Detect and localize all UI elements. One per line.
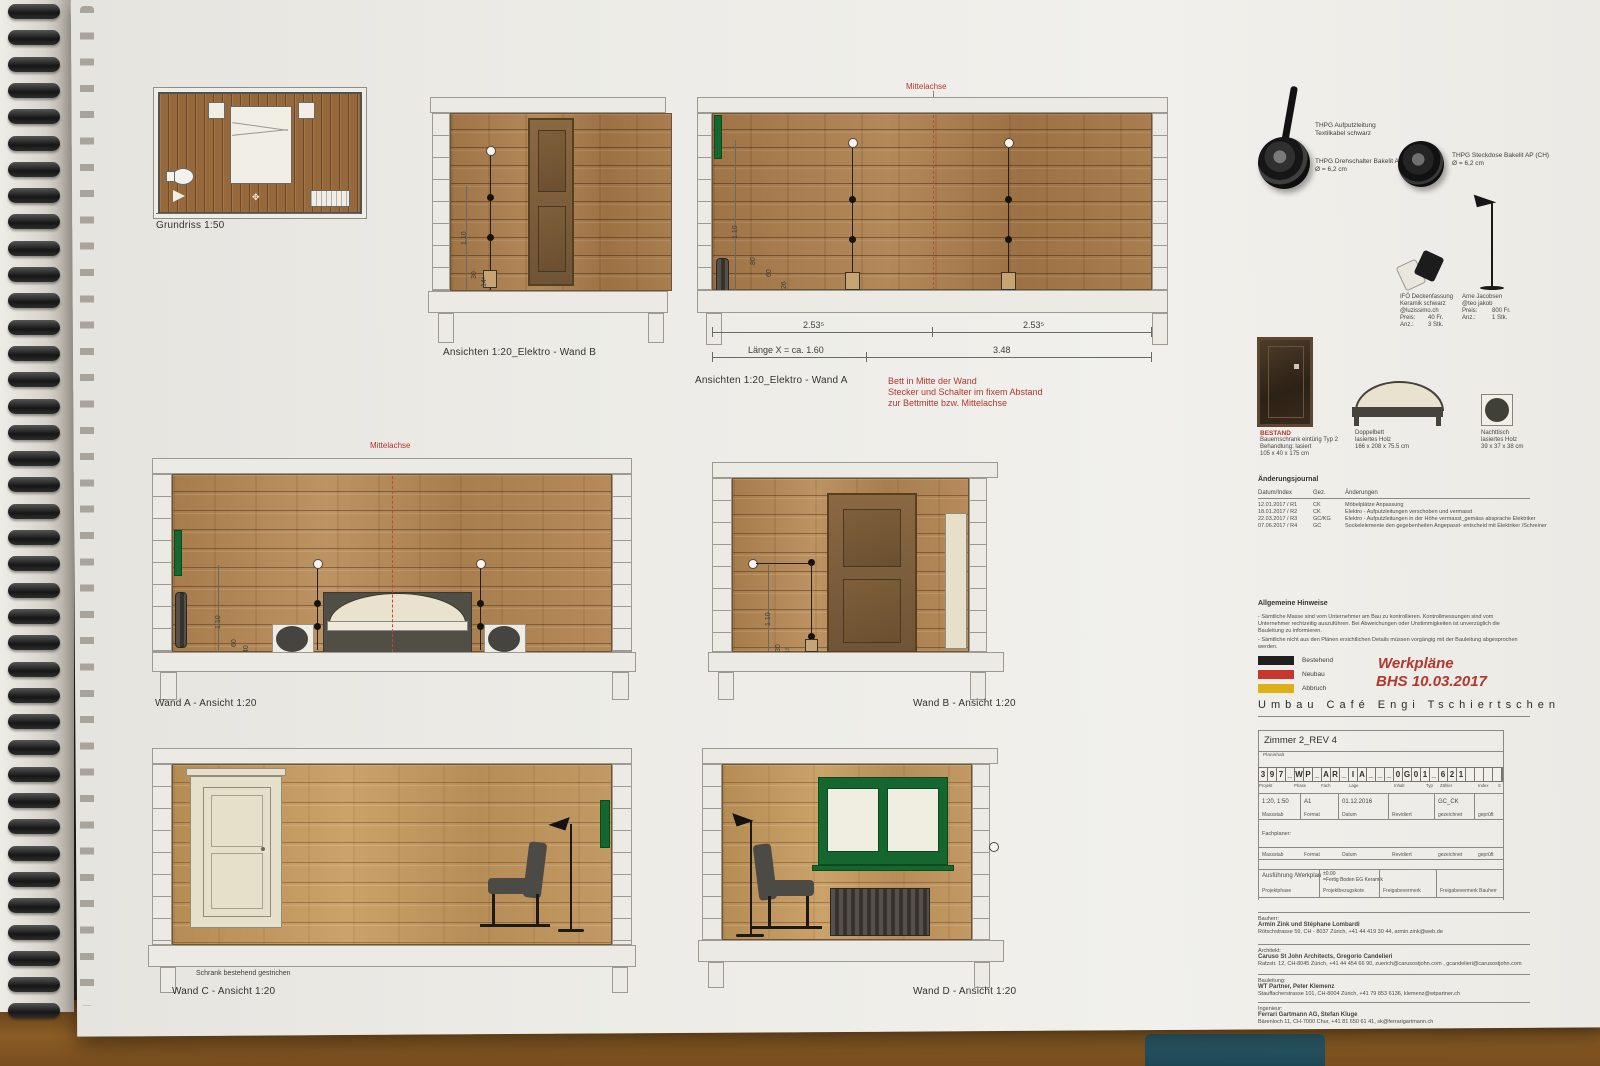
- switch-dot: [314, 600, 321, 607]
- binding-ring: [8, 57, 60, 72]
- chair-leg: [806, 896, 809, 926]
- post-stub: [438, 313, 454, 343]
- dim-110: 1.10: [461, 231, 468, 245]
- label2-massstab: Massstab: [1262, 852, 1283, 858]
- plan-number-label-fach: Fach: [1321, 783, 1331, 788]
- sill-beam: [697, 290, 1168, 313]
- center-axis-dashed: [392, 476, 393, 652]
- steckdose-label-2: Ø = 6,2 cm: [1452, 160, 1484, 167]
- rotary-switch-photo: [1258, 137, 1310, 189]
- legend-swatch-neubau: [1258, 670, 1294, 679]
- log-column: [702, 764, 722, 940]
- stehleuchte-preis-label: Preis:: [1462, 308, 1477, 314]
- elevation-label: Wand B - Ansicht 1:20: [913, 698, 1016, 709]
- journal-row-date: 12.01.2017 / R1: [1258, 502, 1297, 508]
- legend-swatch-bestehend: [1258, 656, 1294, 665]
- contact-rule: [1258, 912, 1530, 913]
- doppelbett-label-2: lasiertes Holz: [1355, 437, 1391, 443]
- log-column: [612, 474, 632, 652]
- binding-ring: [8, 846, 60, 861]
- electrical-drop-line: [1008, 144, 1009, 290]
- binding-ring: [8, 214, 60, 229]
- contact-rule: [1258, 974, 1530, 975]
- log-column: [712, 478, 732, 652]
- project-title-rule: [1258, 716, 1530, 717]
- dim-line: [218, 565, 219, 652]
- value-projektphase: Ausführung /Werkplan: [1262, 873, 1321, 879]
- binding-ring: [8, 399, 60, 414]
- lamp-outlet-dot: [486, 146, 496, 156]
- label2-datum: Datum: [1342, 852, 1357, 858]
- elevation-wand-c: Schrank bestehend gestrichen Wand C - An…: [148, 730, 640, 1000]
- bestand-label-3: 105 x 40 x 175 cm: [1260, 451, 1309, 457]
- titleblock-rightline: [1503, 730, 1504, 900]
- value-datum: 01.12.2016: [1342, 799, 1372, 805]
- elevation-elektro-wand-b: 1.10 30 14⁵ Ansichten 1:20_Elektro - Wan…: [428, 90, 673, 358]
- door-jamb-green: [600, 800, 610, 848]
- value-gezeichnet: GC_CK: [1438, 799, 1459, 805]
- binding-ring: [8, 136, 60, 151]
- fachplaner-label: Fachplaner:: [1262, 831, 1291, 837]
- log-column: [432, 113, 450, 291]
- contact-name: WT Partner, Peter Klemenz: [1258, 984, 1334, 990]
- socket-box: [805, 639, 818, 652]
- sep: [1474, 793, 1475, 819]
- plan-number-label-typ: Typ: [1426, 783, 1433, 788]
- binding-holes: [80, 6, 94, 1006]
- binding-ring: [8, 477, 60, 492]
- log-column: [972, 764, 990, 940]
- toilet-plan: [172, 168, 194, 185]
- dim-60: 60: [766, 269, 773, 277]
- journal-title: Änderungsjournal: [1258, 476, 1318, 483]
- plan-title-sublabel: Planinhalt: [1263, 753, 1284, 758]
- beam: [152, 748, 632, 764]
- stehleuchte-preis: 800 Fr.: [1492, 308, 1511, 314]
- sep: [1300, 793, 1301, 819]
- binding-ring: [8, 109, 60, 124]
- nachttisch-label-1: Nachttisch: [1481, 430, 1509, 436]
- elevation-label: Ansichten 1:20_Elektro - Wand B: [443, 347, 596, 358]
- schalter-label-1: THPG Drehschalter Bakelit AP: [1315, 158, 1403, 165]
- value-kote2: =Fertig Boden EG Keramik: [1323, 877, 1383, 883]
- radiator: [175, 592, 187, 648]
- socket-dot: [487, 234, 494, 241]
- elevation-label: Wand D - Ansicht 1:20: [913, 986, 1016, 997]
- stamp-werkplaene: Werkpläne: [1378, 655, 1454, 672]
- electrical-drop-line: [317, 565, 318, 650]
- lamp-outlet-dot: [748, 559, 758, 569]
- post-stub: [970, 672, 986, 700]
- sill-beam: [708, 652, 1004, 672]
- bed-plan: [230, 106, 292, 184]
- bed-mattress: [327, 621, 468, 631]
- post-stub: [706, 313, 722, 345]
- socket-dot: [314, 623, 321, 630]
- row1-bottomline: [1258, 819, 1503, 820]
- tick: [712, 352, 713, 362]
- socket-dot: [477, 623, 484, 630]
- contact-address: Stauffacherstrasse 101, CH-8004 Zürich, …: [1258, 991, 1460, 997]
- deckenfassung-anz-label: Anz.:: [1400, 322, 1414, 328]
- socket-dot: [1005, 236, 1012, 243]
- electrical-drop-line: [852, 144, 853, 290]
- dim-110: 1.10: [215, 615, 222, 629]
- radiator: [830, 888, 930, 936]
- label-revidiert: Revidiert: [1392, 812, 1412, 818]
- doppelbett-drawing: [1352, 381, 1443, 427]
- chair-runner: [752, 926, 822, 929]
- switch-dot: [477, 600, 484, 607]
- binding-ring: [8, 83, 60, 98]
- row2-bottomline: [1258, 859, 1503, 860]
- beam: [702, 748, 998, 764]
- chair-seat: [762, 880, 814, 896]
- doppelbett-label-1: Doppelbett: [1355, 430, 1384, 436]
- stamp-date: BHS 10.03.2017: [1376, 673, 1487, 690]
- post-stub: [612, 672, 629, 700]
- deckenfassung-anz: 3 Stk.: [1428, 322, 1443, 328]
- switch-dot: [487, 194, 494, 201]
- socket-box: [1001, 272, 1016, 290]
- binding-ring: [8, 504, 60, 519]
- label2-geprueft: geprüft: [1478, 852, 1494, 858]
- hinweise-title: Allgemeine Hinweise: [1258, 600, 1328, 607]
- journal-row-gez: CK: [1313, 509, 1321, 515]
- contact-name: Armin Zink und Stéphane Lombardi: [1258, 922, 1360, 928]
- log-column: [152, 764, 172, 945]
- lamp-outlet-dot: [476, 559, 486, 569]
- beam: [430, 97, 666, 113]
- hinweise-paragraph-1: - Sämtliche Masse sind vom Unternehmer a…: [1258, 614, 1526, 635]
- label2-format: Format: [1304, 852, 1320, 858]
- stehleuchte-label-2: @teo jakob: [1462, 301, 1492, 307]
- journal-row-text: Elektro - Aufputzleitungen in der Höhe v…: [1345, 516, 1535, 522]
- journal-row-gez: GC: [1313, 523, 1321, 529]
- wardrobe: [190, 776, 282, 928]
- cupboard-side-panel: [945, 513, 967, 649]
- floor-lamp-stem: [570, 824, 572, 930]
- label-datum: Datum: [1342, 812, 1357, 818]
- binding-ring: [8, 925, 60, 940]
- log-column: [1152, 113, 1168, 290]
- post-stub: [648, 313, 664, 343]
- row1-topline: [1258, 793, 1503, 794]
- leitung-label-2: Textilkabel schwarz: [1315, 130, 1371, 137]
- dim-110: 1.10: [732, 225, 739, 239]
- binding-ring: [8, 714, 60, 729]
- post-stub: [718, 672, 734, 700]
- binding-ring: [8, 451, 60, 466]
- dim-line: [735, 140, 736, 290]
- binding-ring: [8, 162, 60, 177]
- elevation-wand-d: Wand D - Ansicht 1:20: [698, 730, 1008, 1000]
- binding-ring: [8, 793, 60, 808]
- lamp-outlet-dot: [1004, 138, 1014, 148]
- deckenfassung-label-1: IFÖ Deckenfassung: [1400, 294, 1453, 300]
- dim-laenge-x: Länge X = ca. 1.60: [748, 345, 824, 355]
- journal-row-date: 18.01.2017 / R2: [1258, 509, 1297, 515]
- chair-leg: [492, 894, 495, 924]
- log-column: [969, 478, 987, 652]
- binding-ring: [8, 898, 60, 913]
- stehleuchte-anz-label: Anz.:: [1462, 315, 1476, 321]
- sill-beam: [428, 291, 668, 313]
- label2-gezeichnet: gezeichnet: [1438, 852, 1462, 858]
- stehleuchte-label-1: Arne Jacobsen: [1462, 294, 1502, 300]
- dim-348: 3.48: [993, 345, 1011, 355]
- journal-header-rule: [1258, 498, 1530, 499]
- plan-number-label-lage: Lage: [1349, 783, 1359, 788]
- door-jamb-green: [174, 530, 182, 576]
- wood-wall: [712, 113, 1152, 290]
- nachttisch-label-3: 39 x 37 x 38 cm: [1481, 444, 1523, 450]
- bestand-label-2: Behandlung: lasiert: [1260, 444, 1311, 450]
- tick: [1151, 352, 1152, 362]
- row3-bottomline: [1258, 897, 1503, 898]
- label-projektphase: Projektphase: [1262, 888, 1291, 894]
- sill-beam: [152, 652, 636, 672]
- elevation-label: Wand A - Ansicht 1:20: [155, 698, 257, 709]
- binding-ring: [8, 635, 60, 650]
- dim-line: [768, 565, 769, 651]
- plan-title: Zimmer 2_REV 4: [1264, 735, 1337, 746]
- binding-ring: [8, 320, 60, 335]
- plan-number-grid: 397_WP_AR_IA___0G01_621: [1258, 767, 1503, 782]
- lamp-outlet-dot: [848, 138, 858, 148]
- beam: [152, 458, 632, 474]
- binding-ring: [8, 372, 60, 387]
- tick: [1151, 327, 1152, 337]
- floor-lamp-product-base: [1480, 286, 1504, 290]
- journal-row-text: Elektro - Aufputzleitungen verschoben un…: [1345, 509, 1472, 515]
- post-stub: [1152, 313, 1168, 345]
- deckenfassung-preis-label: Preis:: [1400, 315, 1415, 321]
- nachttisch-label-2: lasiertes Holz: [1481, 437, 1517, 443]
- mittelachse-label: Mittelachse: [906, 82, 946, 91]
- plan-number-label-s: S: [1498, 783, 1501, 788]
- red-note-line2: Stecker und Schalter im fixem Abstand: [888, 387, 1043, 397]
- binding-ring: [8, 819, 60, 834]
- titleblock-leftline: [1258, 730, 1259, 900]
- contact-address: Rötschstrasse 59, CH - 8037 Zürich, +41 …: [1258, 929, 1443, 935]
- binding-ring: [8, 293, 60, 308]
- label-geprueft: geprüft: [1478, 812, 1494, 818]
- binding-ring: [8, 977, 60, 992]
- dim-30: 30: [775, 644, 782, 652]
- plan-number-label-zaehler: Zähler: [1440, 783, 1452, 788]
- binding-ring: [8, 662, 60, 677]
- binding-ring: [8, 609, 60, 624]
- contact-name: Caruso St John Architects, Gregorio Cand…: [1258, 954, 1392, 960]
- beam: [697, 97, 1168, 113]
- deckenfassung-label-3: @luzissimo.ch: [1400, 308, 1439, 314]
- project-title: Umbau Café Engi Tschiertschen: [1258, 699, 1560, 711]
- leitung-label-1: THPG Aufputzleitung: [1315, 122, 1376, 129]
- schalter-label-2: Ø = 6,2 cm: [1315, 166, 1347, 173]
- lamp-outlet-dot: [313, 559, 323, 569]
- red-note-line1: Bett in Mitte der Wand: [888, 376, 977, 386]
- binding-ring: [8, 872, 60, 887]
- chair-leg: [536, 894, 539, 924]
- plan-number-label-inhalt: Inhalt: [1394, 783, 1405, 788]
- photographed-plan-scene: ✥ Grundriss 1:50 1.10 30 14⁵ Ansichten 1…: [0, 0, 1600, 1066]
- sink-plan: [173, 190, 185, 202]
- window-sill: [812, 865, 954, 871]
- center-axis-dashed: [933, 115, 934, 290]
- wardrobe-cornice: [186, 768, 286, 776]
- dim-30: 30: [471, 271, 478, 279]
- stehleuchte-anz: 1 Stk.: [1492, 315, 1507, 321]
- binding-ring: [8, 530, 60, 545]
- post-stub: [160, 672, 177, 700]
- row2-topline: [1258, 847, 1503, 848]
- binding-ring: [8, 346, 60, 361]
- journal-row-date: 22.03.2017 / R3: [1258, 516, 1297, 522]
- electrical-drop-line: [480, 565, 481, 650]
- label2-revidiert: Revidiert: [1392, 852, 1412, 858]
- floor-lamp-product-stem: [1491, 203, 1493, 287]
- binding-ring: [8, 951, 60, 966]
- label-freigabevermerk-bauherr: Freigabevermerk Bauherr: [1440, 888, 1497, 894]
- door-jamb-green: [714, 115, 722, 159]
- plan-number-label-phase: Phase: [1294, 783, 1306, 788]
- doppelbett-label-3: 166 x 208 x 75.5 cm: [1355, 444, 1409, 450]
- door: [827, 493, 917, 653]
- log-column: [152, 474, 172, 652]
- nightstand-plan-right: [298, 102, 315, 119]
- center-cross-plan: ✥: [252, 192, 262, 202]
- row3-topline: [1258, 869, 1503, 870]
- journal-col-gez: Gez.: [1313, 490, 1326, 496]
- post-stub: [974, 962, 990, 988]
- label-freigabevermerk: Freigabevermerk: [1383, 888, 1421, 894]
- chair-seat: [488, 878, 540, 894]
- dim-145: 14⁵: [481, 276, 488, 287]
- label-gezeichnet: gezeichnet: [1438, 812, 1462, 818]
- nightstand-plan-left: [208, 102, 225, 119]
- titleblock-topline: [1258, 730, 1503, 731]
- contact-rule: [1258, 944, 1530, 945]
- legend-label-bestehend: Bestehend: [1302, 657, 1333, 664]
- journal-col-aenderungen: Änderungen: [1345, 490, 1378, 496]
- sep: [1338, 793, 1339, 819]
- binding-ring: [8, 30, 60, 45]
- contact-name: Ferrari Gartmann AG, Stefan Kluge: [1258, 1012, 1357, 1018]
- object-on-desk: [1145, 1034, 1325, 1066]
- floor-lamp-base: [558, 929, 584, 932]
- label-massstab: Massstab: [1262, 812, 1283, 818]
- post-stub: [612, 967, 628, 993]
- elevation-label: Wand C - Ansicht 1:20: [172, 986, 275, 997]
- floor-plan-label: Grundriss 1:50: [156, 220, 224, 231]
- socket-box: [845, 272, 860, 290]
- elevation-label: Ansichten 1:20_Elektro - Wand A: [695, 375, 848, 386]
- plan-number-label-index: Index: [1478, 783, 1489, 788]
- mittelachse-label: Mittelachse: [370, 441, 410, 450]
- dim-2535-left: 2.53⁵: [803, 320, 824, 330]
- red-note-line3: zur Bettmitte bzw. Mittelachse: [888, 398, 1007, 408]
- dim-80: 80: [750, 257, 757, 265]
- chair-runner: [480, 924, 550, 927]
- radiator-plan: [310, 190, 350, 207]
- plan-number-label-projekt: Projekt: [1259, 783, 1272, 788]
- binding-ring: [8, 4, 60, 19]
- sep: [1436, 869, 1437, 897]
- bestand-wardrobe-photo: [1257, 337, 1313, 427]
- floor-plan: ✥ Grundriss 1:50: [148, 82, 368, 232]
- toilet-tank-plan: [166, 171, 175, 182]
- binding-ring: [8, 188, 60, 203]
- legend-swatch-abbruch: [1258, 684, 1294, 693]
- binding-ring: [8, 556, 60, 571]
- log-column: [697, 113, 712, 290]
- sill-beam: [148, 945, 636, 967]
- journal-row-gez: GC/KG: [1313, 516, 1331, 522]
- journal-row-date: 07.06.2017 / R4: [1258, 523, 1297, 529]
- dim-26: 26: [781, 281, 788, 289]
- legend-label-abbruch: Abbruch: [1302, 685, 1326, 692]
- nachttisch-drawing: [1481, 394, 1513, 426]
- beam: [712, 462, 998, 478]
- journal-row-text: Möbelplätze Anpassung: [1345, 502, 1403, 508]
- journal-row-gez: CK: [1313, 502, 1321, 508]
- contact-rule: [1258, 1002, 1530, 1003]
- deckenfassung-preis: 40 Fr.: [1428, 315, 1443, 321]
- binding-ring: [8, 583, 60, 598]
- elevation-wand-b: 1.10 30 14⁵ Wand B - Ansicht 1:20: [708, 455, 1008, 707]
- value-format: A1: [1304, 799, 1311, 805]
- binding-ring: [8, 740, 60, 755]
- log-column: [612, 764, 632, 945]
- binding-ring: [8, 767, 60, 782]
- socket-photo: [1398, 141, 1444, 187]
- binding-ring: [8, 267, 60, 282]
- journal-row-text: Sockelelemente den gegebenheiten Angepas…: [1345, 523, 1547, 529]
- label-format: Format: [1304, 812, 1320, 818]
- tick: [932, 327, 933, 337]
- door: [528, 118, 574, 286]
- deckenfassung-label-2: Keramik schwarz: [1400, 301, 1446, 307]
- wire-vertical: [811, 563, 812, 637]
- bestand-tag: BESTAND: [1260, 430, 1291, 437]
- window-frame: [818, 777, 948, 865]
- binding-ring: [8, 425, 60, 440]
- outlet-dot: [989, 842, 999, 852]
- chair-leg: [768, 896, 771, 926]
- plan-title-rule: [1258, 751, 1503, 752]
- bestand-label-1: Bauernschrank eintürig Typ 2: [1260, 437, 1338, 443]
- floor-lamp-base: [736, 934, 764, 937]
- sep: [1379, 869, 1380, 897]
- elevation-wand-a: Mittelachse 1.10 60 40 26 Wand A - Ansic…: [148, 440, 640, 712]
- contact-address: Rafzstr. 12, CH-8045 Zürich, +41 44 454 …: [1258, 961, 1522, 967]
- post-stub: [708, 962, 724, 988]
- binding-ring: [8, 688, 60, 703]
- switch-dot: [1005, 196, 1012, 203]
- tick: [866, 352, 867, 362]
- value-massstab: 1:20, 1:50: [1262, 799, 1289, 805]
- steckdose-label-1: THPG Steckdose Bakelit AP (CH): [1452, 152, 1549, 159]
- dim-2535-right: 2.53⁵: [1023, 320, 1044, 330]
- plan-dim-line: [156, 213, 360, 214]
- contact-address: Bärenloch 11, CH-7000 Chur, +41 81 650 6…: [1258, 1019, 1433, 1025]
- wire-horizontal: [756, 563, 812, 564]
- nightstand-left: [276, 626, 308, 652]
- floor-lamp-stem: [750, 820, 752, 936]
- journal-col-datum: Datum/Index: [1258, 490, 1292, 496]
- dim-60: 60: [231, 639, 238, 647]
